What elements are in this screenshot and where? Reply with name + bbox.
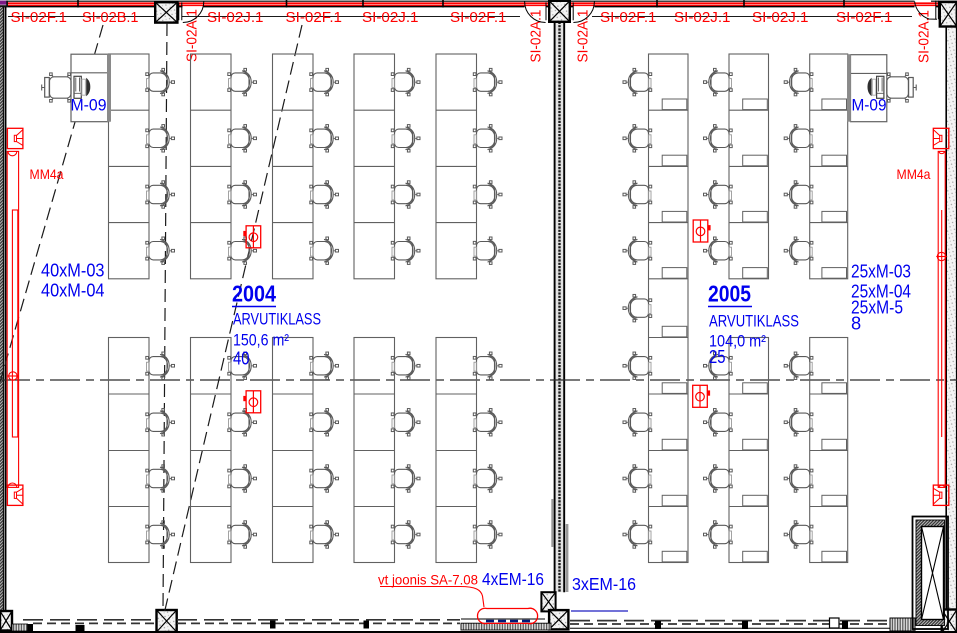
svg-text:3xEM-16: 3xEM-16: [572, 574, 636, 594]
svg-text:SI-02F.1: SI-02F.1: [836, 9, 893, 26]
svg-text:4xEM-16: 4xEM-16: [482, 569, 544, 589]
svg-text:25xM-03: 25xM-03: [851, 261, 911, 282]
svg-text:40xM-03: 40xM-03: [41, 260, 105, 281]
svg-text:SI-02F.1: SI-02F.1: [286, 9, 343, 26]
svg-text:2004: 2004: [232, 281, 276, 307]
svg-text:25: 25: [709, 347, 726, 367]
svg-text:150,6 m²: 150,6 m²: [233, 332, 290, 350]
svg-text:M-09: M-09: [71, 97, 107, 115]
svg-text:ARVUTIKLASS: ARVUTIKLASS: [233, 311, 321, 329]
svg-text:SI-02J.1: SI-02J.1: [674, 9, 731, 26]
svg-text:SI-02J.1: SI-02J.1: [207, 9, 264, 26]
svg-text:SI-02J.1: SI-02J.1: [752, 9, 809, 26]
svg-text:2005: 2005: [708, 281, 751, 307]
svg-text:8: 8: [851, 313, 861, 334]
svg-text:SI-02A.1: SI-02A.1: [528, 10, 545, 63]
svg-text:SI-02B.1: SI-02B.1: [82, 9, 139, 26]
svg-text:M-09: M-09: [852, 97, 887, 115]
svg-text:SI-02F.1: SI-02F.1: [11, 9, 68, 26]
svg-text:ARVUTIKLASS: ARVUTIKLASS: [709, 313, 799, 331]
svg-text:MM4a: MM4a: [30, 166, 64, 182]
svg-text:SI-02F.1: SI-02F.1: [450, 9, 507, 26]
svg-text:40xM-04: 40xM-04: [41, 280, 105, 301]
svg-text:SI-02F.1: SI-02F.1: [600, 9, 657, 26]
svg-text:MM4a: MM4a: [897, 166, 931, 182]
svg-text:SI-02A.1: SI-02A.1: [575, 10, 592, 63]
svg-text:40: 40: [233, 349, 250, 369]
svg-text:SI-02J.1: SI-02J.1: [362, 9, 419, 26]
svg-text:SI-02A.1: SI-02A.1: [916, 10, 933, 63]
svg-text:vt joonis SA-7.08: vt joonis SA-7.08: [378, 572, 478, 588]
